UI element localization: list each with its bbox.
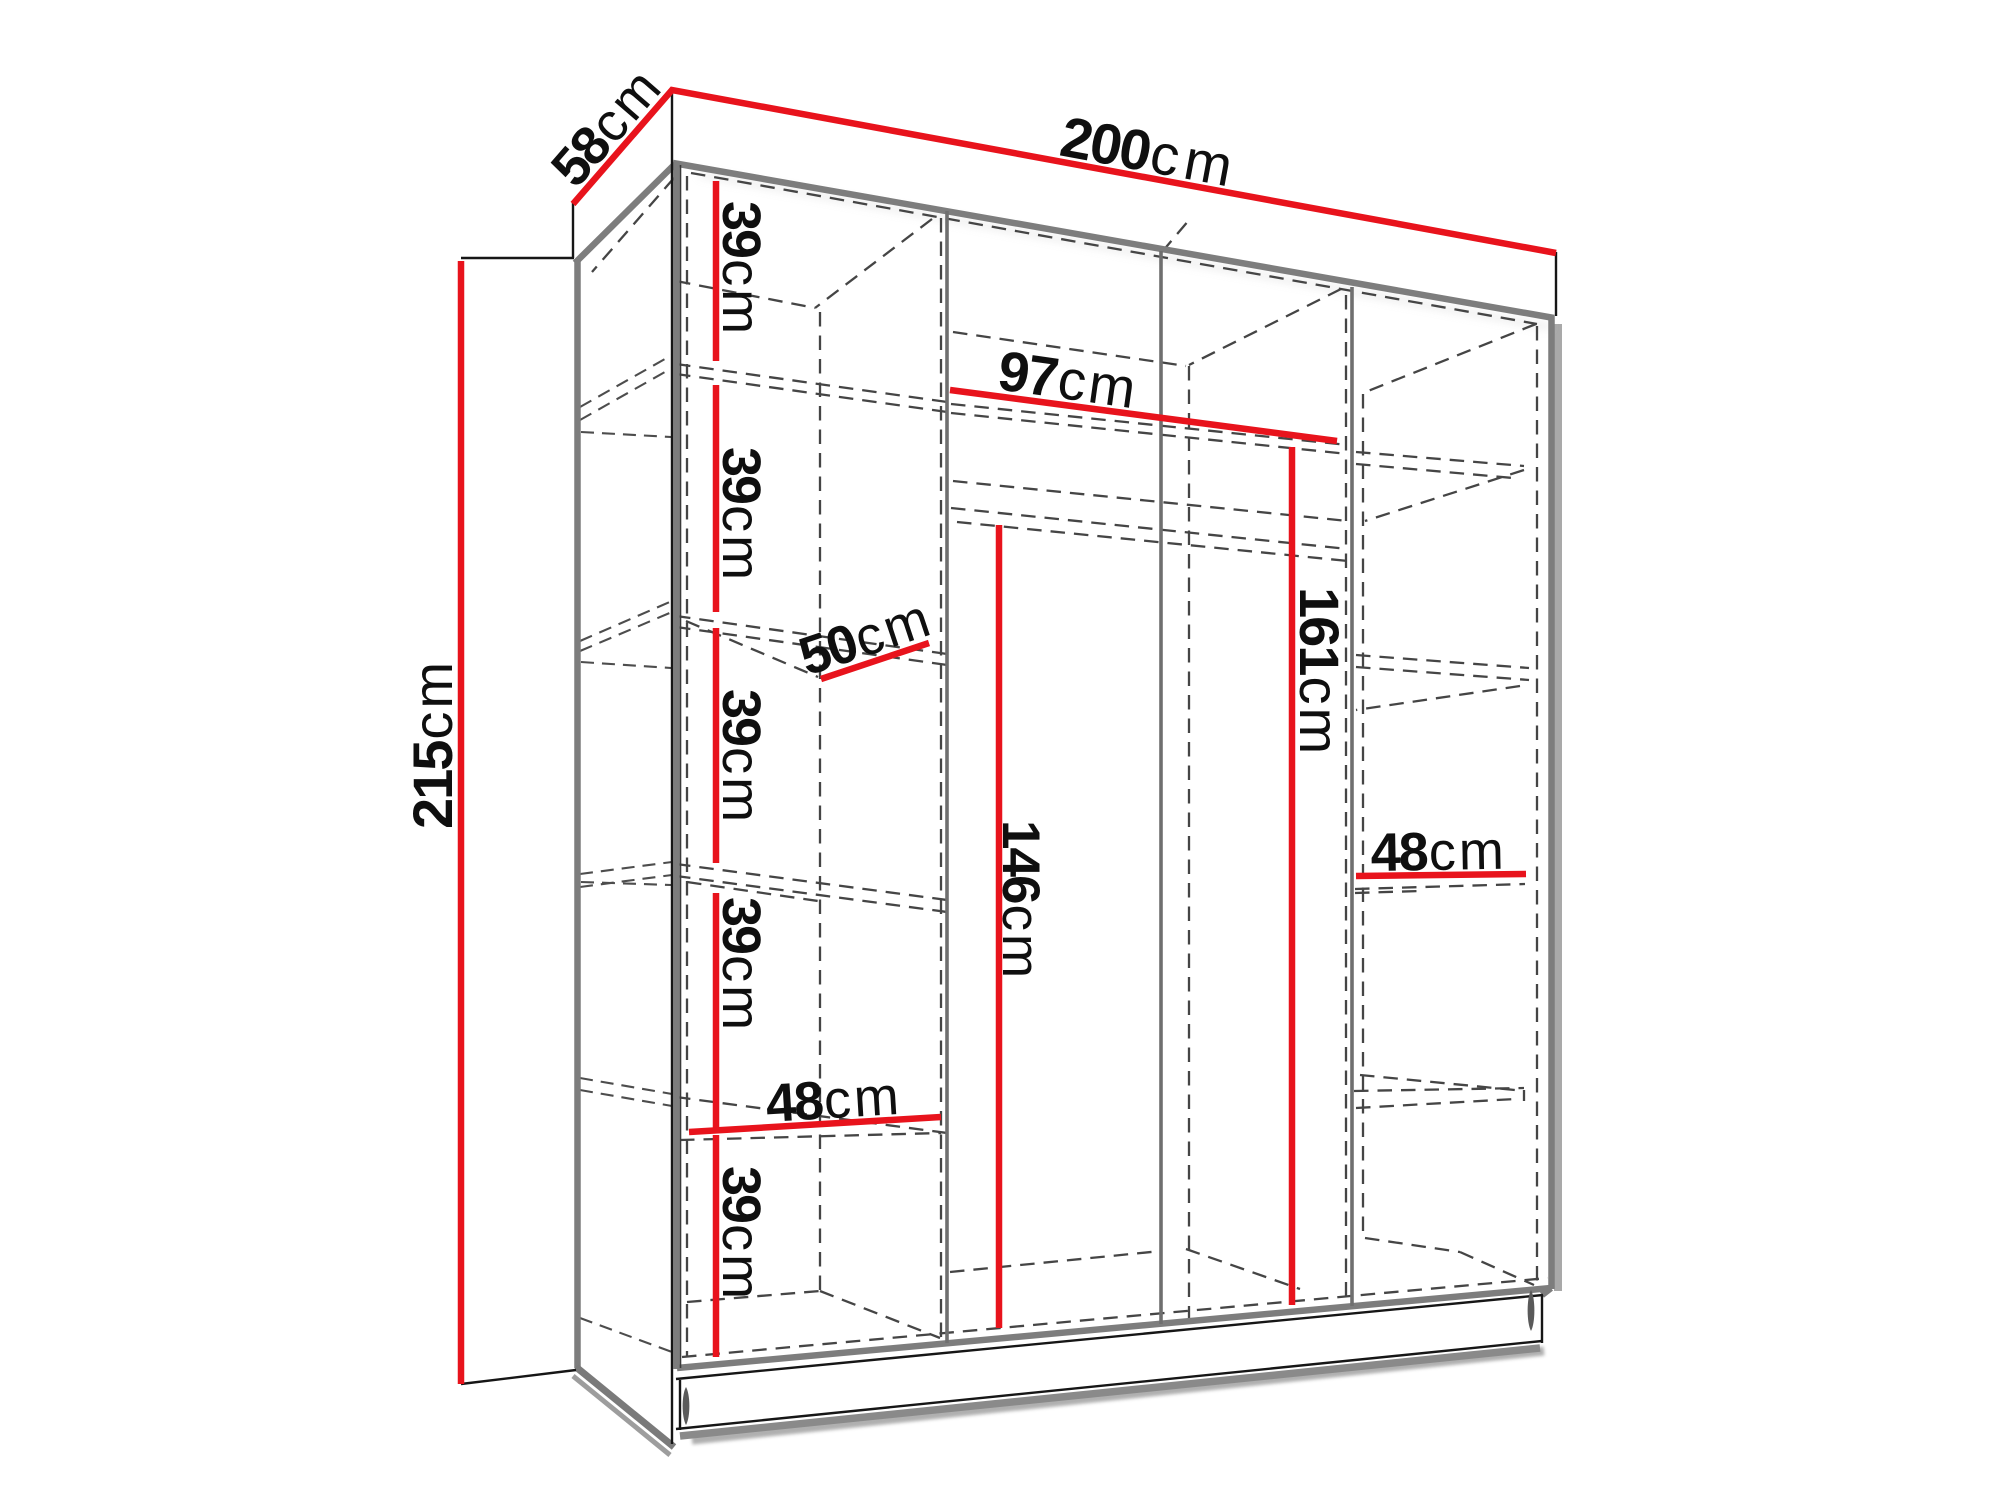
svg-text:161cm: 161cm xyxy=(1288,587,1351,757)
svg-text:39cm: 39cm xyxy=(711,1166,771,1302)
svg-text:215cm: 215cm xyxy=(401,659,464,829)
svg-text:48cm: 48cm xyxy=(764,1066,903,1134)
svg-text:146cm: 146cm xyxy=(991,820,1050,981)
svg-text:39cm: 39cm xyxy=(711,447,771,583)
svg-text:48cm: 48cm xyxy=(1370,821,1507,883)
svg-text:39cm: 39cm xyxy=(711,201,771,337)
svg-text:39cm: 39cm xyxy=(711,689,771,825)
svg-text:39cm: 39cm xyxy=(711,897,771,1033)
